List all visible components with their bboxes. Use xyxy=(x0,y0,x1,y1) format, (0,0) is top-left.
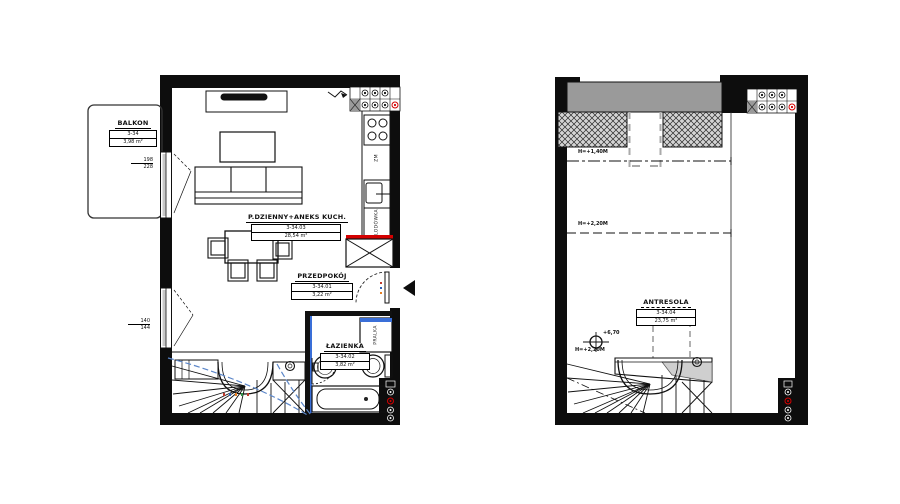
room-label-przedpokoj: PRZEDPOKÓJ 3-34.01 3,22 m² xyxy=(288,263,356,300)
sofa xyxy=(195,167,302,204)
room-area: 23,75 m² xyxy=(637,318,695,325)
height-note-220-stair: H=+2,20M xyxy=(575,347,605,353)
room-label-antresola: ANTRESOLA 3-34.04 23,75 m² xyxy=(630,289,702,326)
side-window-dim: 140 144 xyxy=(128,318,150,331)
room-name: ŁAZIENKA xyxy=(324,343,366,352)
room-number: 3-34 xyxy=(110,131,156,139)
room-label-balkon: BALKON 3-34 3,98 m² xyxy=(104,110,162,147)
fridge-label: LODÓWKA xyxy=(375,209,380,235)
right-plan-drawing xyxy=(550,70,815,435)
room-area: 3,98 m² xyxy=(110,139,156,146)
washer-label: PRALKA xyxy=(374,325,379,345)
room-label-lazienka: ŁAZIENKA 3-34.02 3,82 m² xyxy=(316,333,374,370)
balcony-window xyxy=(161,152,192,218)
height-note-220: H=+2,20M xyxy=(578,221,608,227)
coffee-table xyxy=(220,132,275,162)
ventilation-legend xyxy=(328,87,400,111)
room-name: BALKON xyxy=(115,120,150,129)
room-name: PRZEDPOKÓJ xyxy=(295,273,348,282)
floor-plan-sheet: BALKON 3-34 3,98 m² P.DZIENNY+ANEKS KUCH… xyxy=(0,0,900,504)
entrance-door xyxy=(356,272,389,303)
stairs xyxy=(168,352,311,416)
room-number: 3-34.04 xyxy=(637,310,695,318)
dishwasher-label: ZM xyxy=(375,154,380,162)
insulation-hatch-left xyxy=(558,112,627,147)
balcony-window-dim: 198 228 xyxy=(131,157,153,170)
roof-band xyxy=(567,82,722,112)
tv-cabinet xyxy=(206,91,287,112)
room-area: 3,22 m² xyxy=(292,292,352,299)
mezzanine-stairs xyxy=(567,358,712,414)
room-number: 3-34.01 xyxy=(292,284,352,292)
side-window xyxy=(161,288,194,348)
room-name: ANTRESOLA xyxy=(641,299,691,308)
room-label-living: P.DZIENNY+ANEKS KUCH. 3-34.03 28,54 m² xyxy=(246,204,346,241)
room-number: 3-34.03 xyxy=(252,225,340,233)
insulation-hatch-right xyxy=(663,112,722,147)
ventilation-legend-mezzanine xyxy=(747,89,797,113)
room-number: 3-34.02 xyxy=(321,354,369,362)
room-area: 28,54 m² xyxy=(252,233,340,240)
room-name: P.DZIENNY+ANEKS KUCH. xyxy=(246,214,348,223)
room-area: 3,82 m² xyxy=(321,362,369,369)
level-mark-670: +6,70 xyxy=(603,330,620,336)
entrance-arrow-icon xyxy=(403,280,415,296)
height-note-140: H=+1,40M xyxy=(578,149,608,155)
